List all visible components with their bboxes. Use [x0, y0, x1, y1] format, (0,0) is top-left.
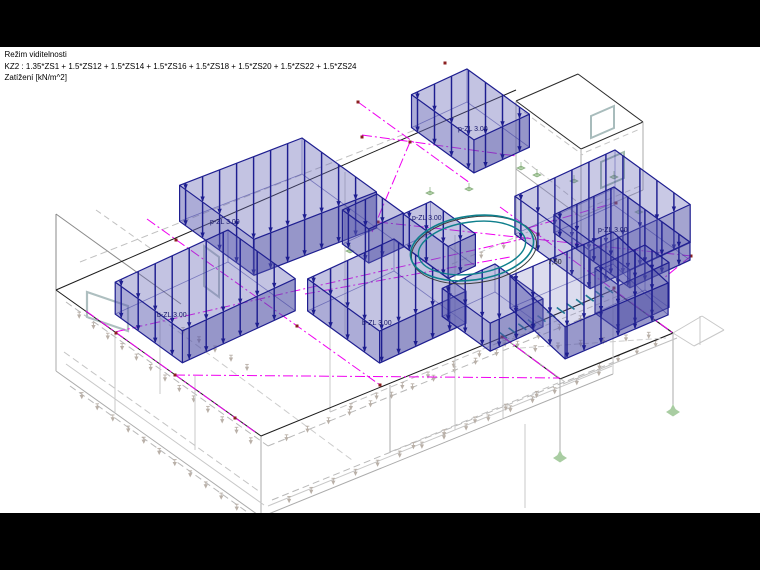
svg-text:7,50: 7,50 [548, 259, 562, 266]
svg-text:Režim viditelnosti: Režim viditelnosti [5, 50, 67, 59]
svg-text:p-ZL 3.00: p-ZL 3.00 [598, 227, 628, 234]
svg-text:b-ZL 3.00: b-ZL 3.00 [362, 320, 392, 327]
svg-text:Zatížení [kN/m^2]: Zatížení [kN/m^2] [5, 73, 67, 82]
svg-text:p-ZL 3.00: p-ZL 3.00 [412, 215, 442, 222]
svg-text:p-ZL 3.00: p-ZL 3.00 [210, 219, 240, 226]
svg-text:KZ2 : 1.35*ZS1 + 1.5*ZS12 + 1.: KZ2 : 1.35*ZS1 + 1.5*ZS12 + 1.5*ZS14 + 1… [5, 62, 358, 71]
svg-text:b-ZL 3.00: b-ZL 3.00 [157, 312, 187, 319]
svg-text:p-ZL 3.00: p-ZL 3.00 [458, 126, 488, 133]
